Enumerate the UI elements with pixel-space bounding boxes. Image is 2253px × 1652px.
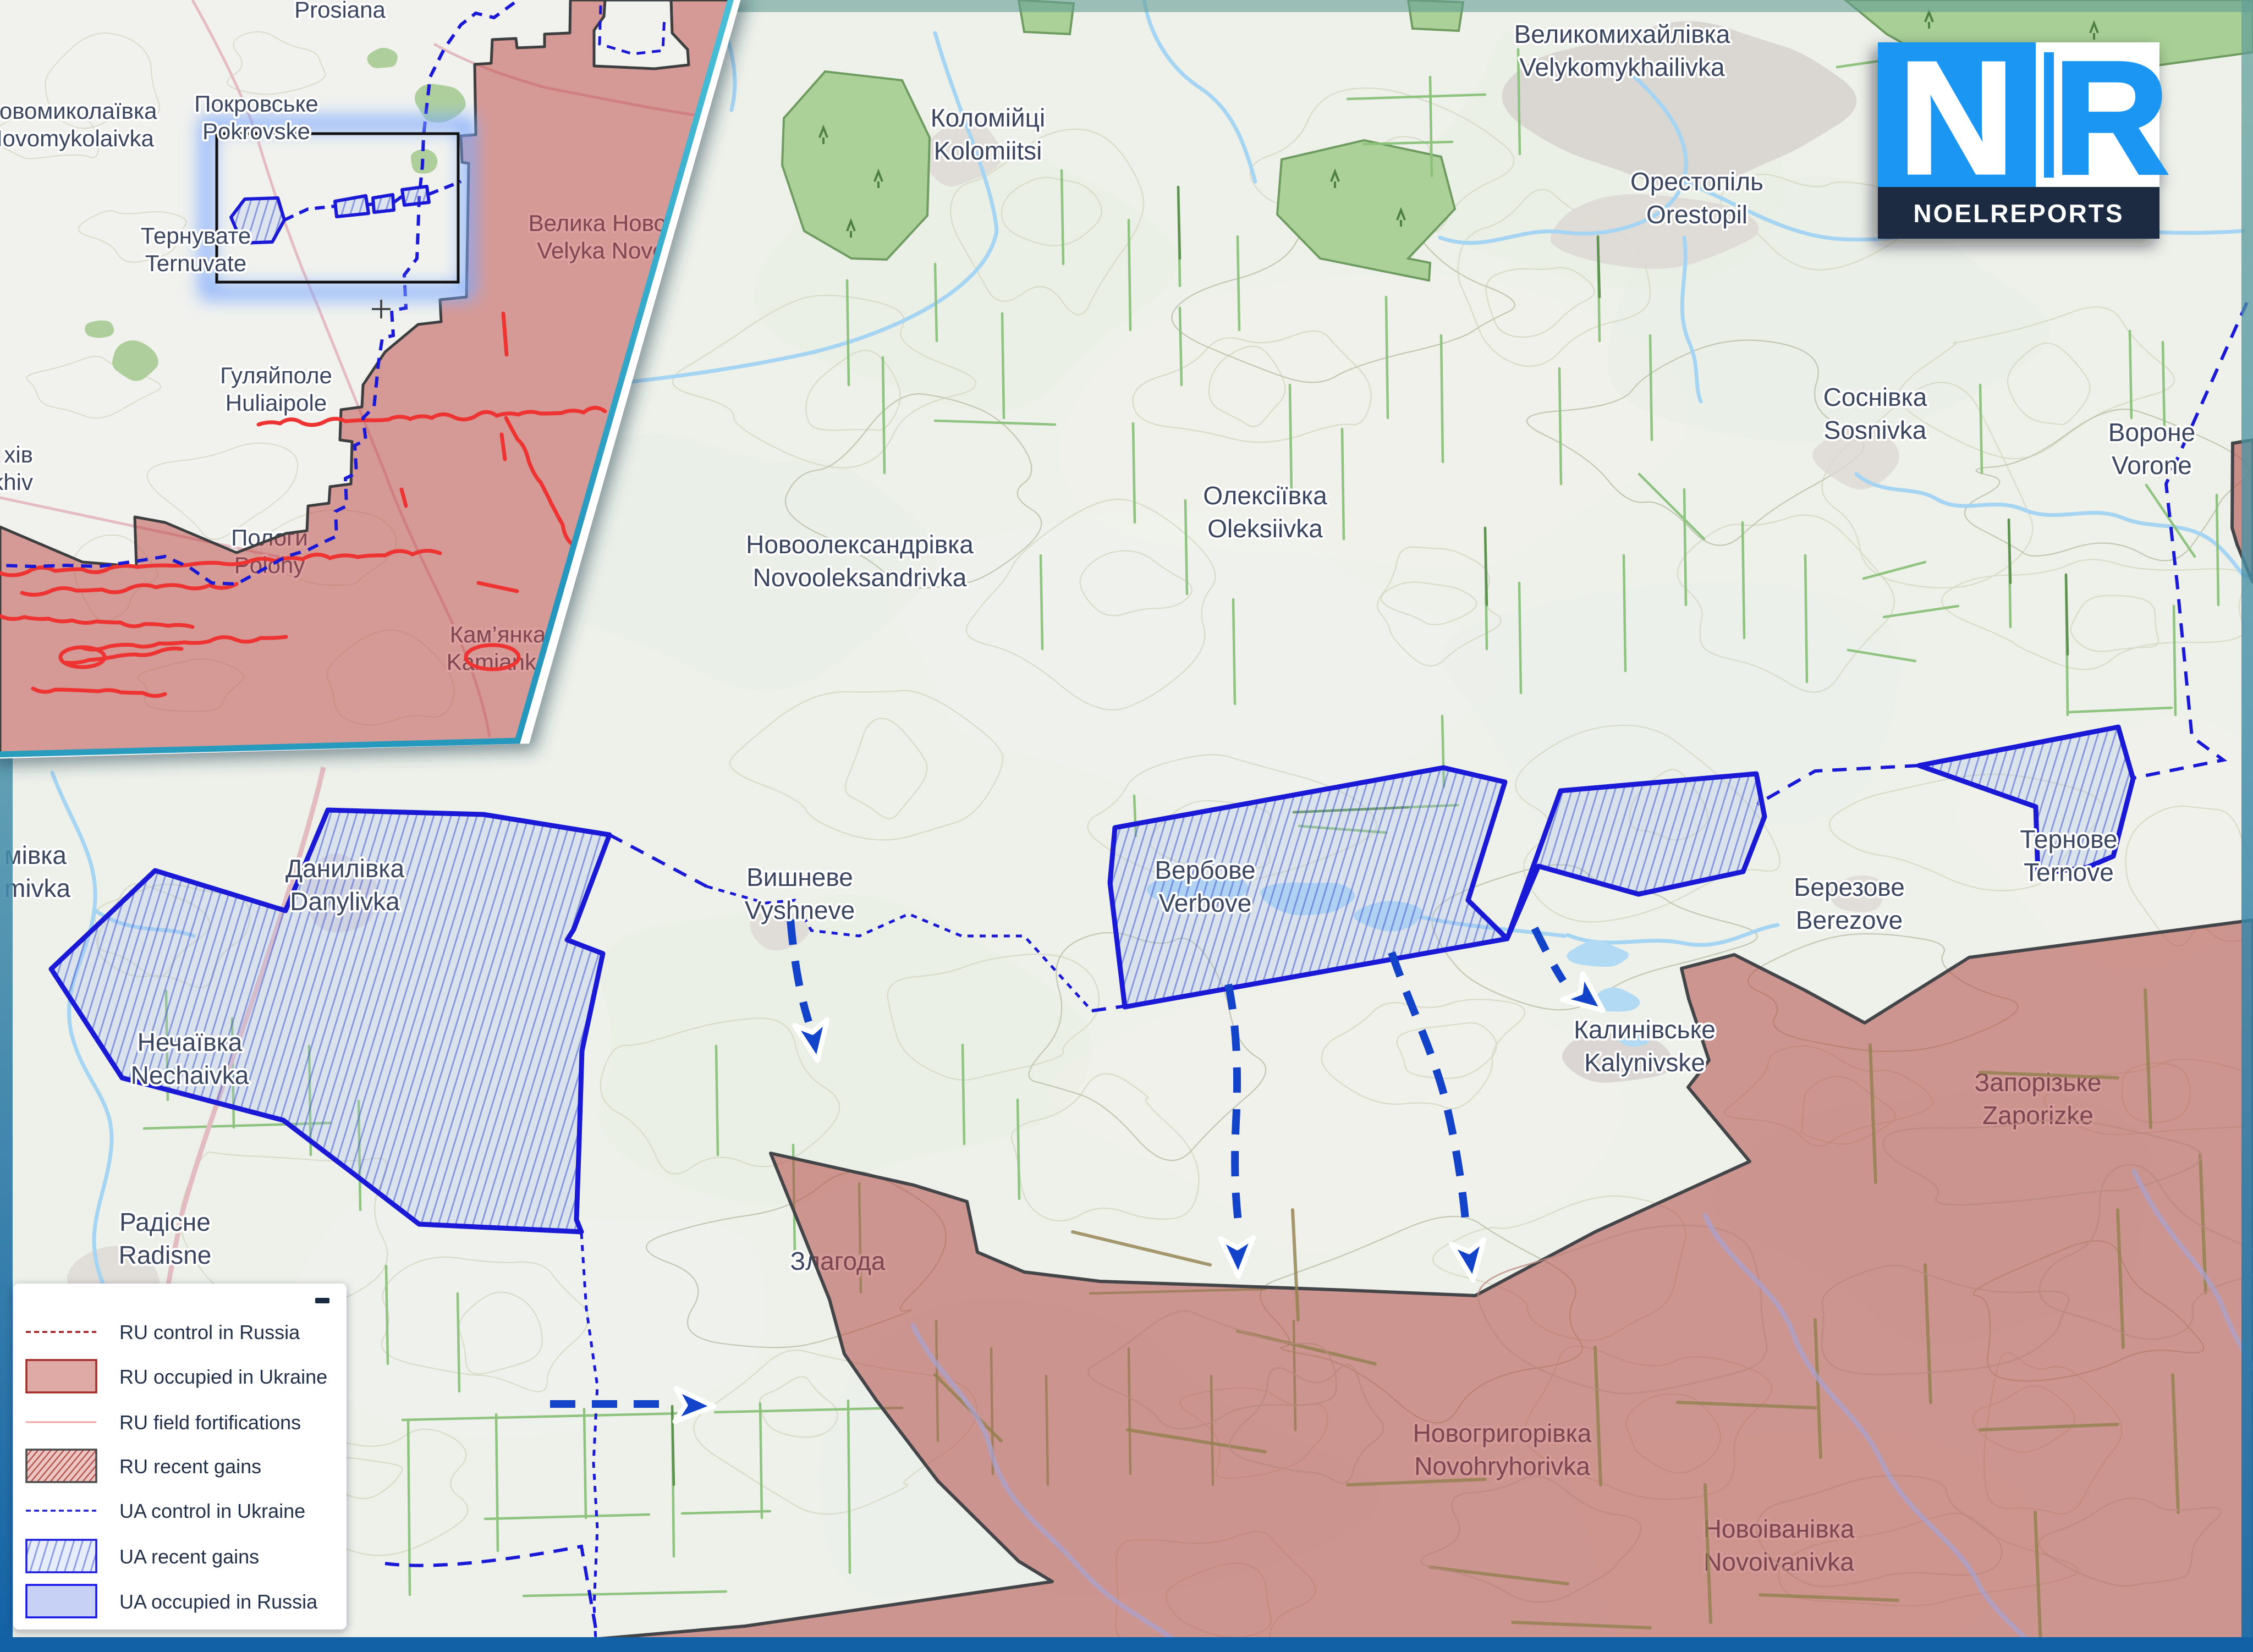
svg-text:mivka: mivka <box>4 874 71 902</box>
svg-text:Вербове: Вербове <box>1155 856 1255 884</box>
svg-text:Тернувате: Тернувате <box>141 223 251 249</box>
svg-text:Oleksiivka: Oleksiivka <box>1207 514 1323 543</box>
svg-text:Kalynivske: Kalynivske <box>1584 1048 1705 1077</box>
svg-text:Вороне: Вороне <box>2108 418 2195 447</box>
svg-text:UA occupied in Russia: UA occupied in Russia <box>119 1590 318 1613</box>
svg-text:Ternove: Ternove <box>2024 858 2114 886</box>
svg-text:Новоолександрівка: Новоолександрівка <box>746 530 974 559</box>
svg-text:Orestopil: Orestopil <box>1646 200 1748 229</box>
svg-text:NOELREPORTS: NOELREPORTS <box>1913 199 2124 228</box>
svg-text:Pokrovske: Pokrovske <box>202 118 310 144</box>
svg-text:Ternuvate: Ternuvate <box>145 250 246 276</box>
svg-text:Verbove: Verbove <box>1159 889 1252 917</box>
svg-text:UA control in Ukraine: UA control in Ukraine <box>119 1500 305 1522</box>
svg-text:Тернове: Тернове <box>2020 825 2117 853</box>
svg-text:RU field fortifications: RU field fortifications <box>119 1411 301 1434</box>
svg-text:Гуляйполе: Гуляйполе <box>220 362 332 388</box>
svg-text:N: N <box>1898 28 2015 207</box>
svg-text:Nechaivka: Nechaivka <box>131 1061 249 1089</box>
svg-text:khiv: khiv <box>0 469 33 495</box>
svg-text:Radisne: Radisne <box>119 1241 212 1269</box>
svg-text:Калинівське: Калинівське <box>1574 1015 1716 1044</box>
svg-text:Радісне: Радісне <box>119 1208 211 1236</box>
svg-text:Vorone: Vorone <box>2112 451 2192 480</box>
svg-text:R: R <box>2053 28 2169 207</box>
svg-text:Коломійці: Коломійці <box>931 103 1045 132</box>
svg-text:Соснівка: Соснівка <box>1823 383 1927 411</box>
svg-text:Новомиколаївка: Новомиколаївка <box>0 98 157 124</box>
svg-text:Prosiana: Prosiana <box>294 0 386 23</box>
svg-text:Великомихайлівка: Великомихайлівка <box>1514 20 1730 48</box>
svg-text:Березове: Березове <box>1794 873 1905 901</box>
svg-text:Вишневе: Вишневе <box>746 863 853 891</box>
svg-text:Покровське: Покровське <box>194 91 318 117</box>
svg-text:Novooleksandrivka: Novooleksandrivka <box>753 563 967 592</box>
svg-text:Kolomiitsi: Kolomiitsi <box>934 136 1042 165</box>
svg-text:Нечаївка: Нечаївка <box>138 1028 243 1056</box>
svg-text:Novomykolaivka: Novomykolaivka <box>0 125 155 151</box>
svg-text:Velykomykhailivka: Velykomykhailivka <box>1519 53 1725 81</box>
svg-text:Sosnivka: Sosnivka <box>1824 416 1927 444</box>
svg-text:Орестопіль: Орестопіль <box>1630 167 1763 196</box>
svg-text:RU occupied in Ukraine: RU occupied in Ukraine <box>119 1365 327 1388</box>
svg-text:Vyshneve: Vyshneve <box>745 896 855 924</box>
svg-text:Berezove: Berezove <box>1796 906 1903 934</box>
svg-text:хів: хів <box>4 442 33 467</box>
svg-text:RU recent gains: RU recent gains <box>119 1455 261 1478</box>
svg-text:Danylivka: Danylivka <box>290 887 400 916</box>
svg-text:RU control in Russia: RU control in Russia <box>119 1321 300 1343</box>
svg-text:мівка: мівка <box>4 841 67 869</box>
svg-text:Huliaipole: Huliaipole <box>226 390 327 416</box>
svg-text:Данилівка: Данилівка <box>285 854 404 883</box>
svg-text:Олексіївка: Олексіївка <box>1203 481 1327 510</box>
svg-text:UA recent gains: UA recent gains <box>119 1545 259 1568</box>
